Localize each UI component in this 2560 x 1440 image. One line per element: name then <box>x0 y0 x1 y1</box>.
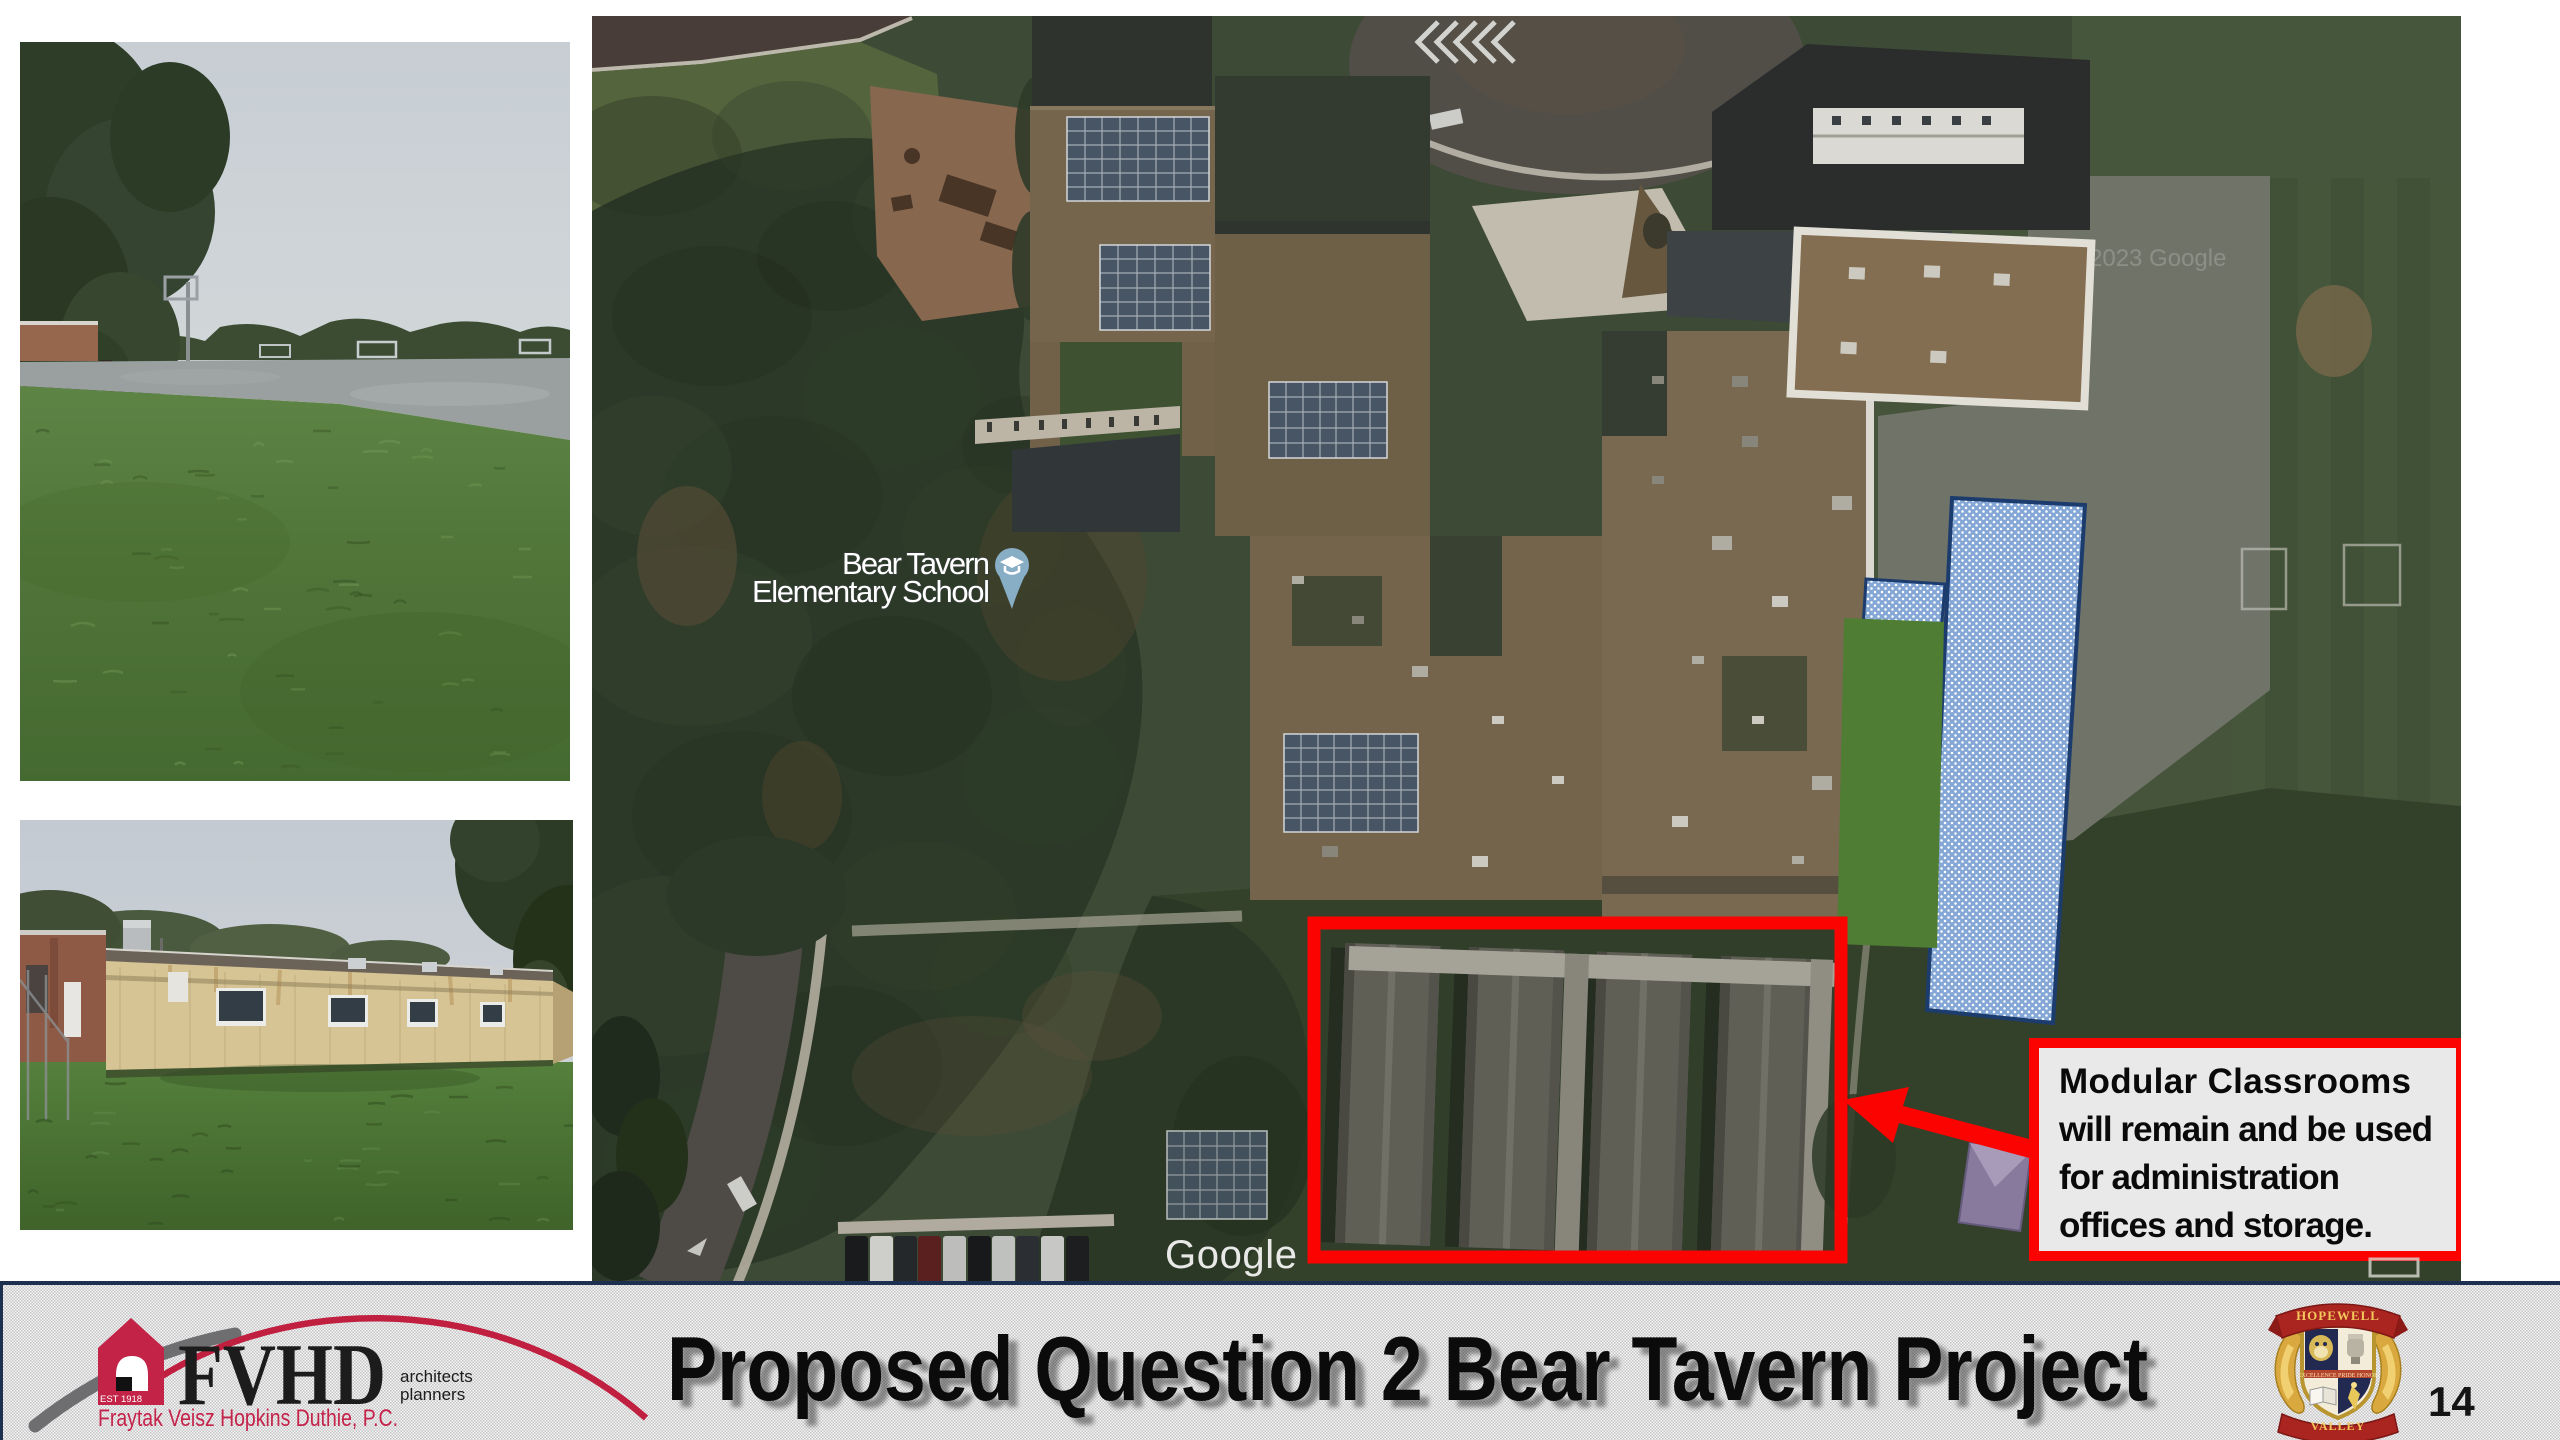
svg-text:offices and storage.: offices and storage. <box>2059 1206 2373 1245</box>
svg-text:Elementary School: Elementary School <box>752 574 990 609</box>
svg-text:Fraytak Veisz Hopkins Duthie,: Fraytak Veisz Hopkins Duthie, P.C. <box>98 1405 398 1432</box>
svg-text:HOPEWELL: HOPEWELL <box>2296 1308 2380 1323</box>
svg-text:VALLEY: VALLEY <box>2311 1419 2365 1433</box>
svg-text:for administration: for administration <box>2059 1158 2340 1197</box>
svg-text:Modular Classrooms: Modular Classrooms <box>2059 1062 2411 1101</box>
svg-text:EXCELLENCE PRIDE HONOR: EXCELLENCE PRIDE HONOR <box>2298 1373 2378 1379</box>
svg-text:architects: architects <box>400 1367 473 1386</box>
svg-text:planners: planners <box>400 1385 465 1404</box>
svg-text:Proposed Question 2 Bear Taver: Proposed Question 2 Bear Tavern Project <box>667 1320 2148 1420</box>
svg-text:will remain and be used: will remain and be used <box>2058 1110 2433 1149</box>
svg-text:EST 1918: EST 1918 <box>100 1394 142 1405</box>
